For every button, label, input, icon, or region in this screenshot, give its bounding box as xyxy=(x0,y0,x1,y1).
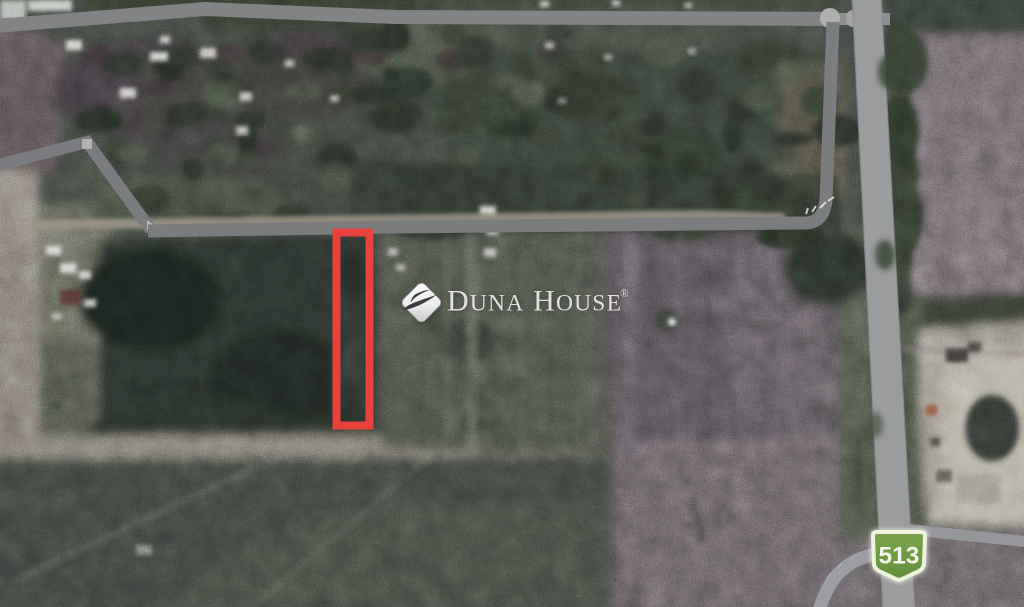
svg-text:513: 513 xyxy=(879,543,920,570)
svg-text:®: ® xyxy=(620,288,629,300)
